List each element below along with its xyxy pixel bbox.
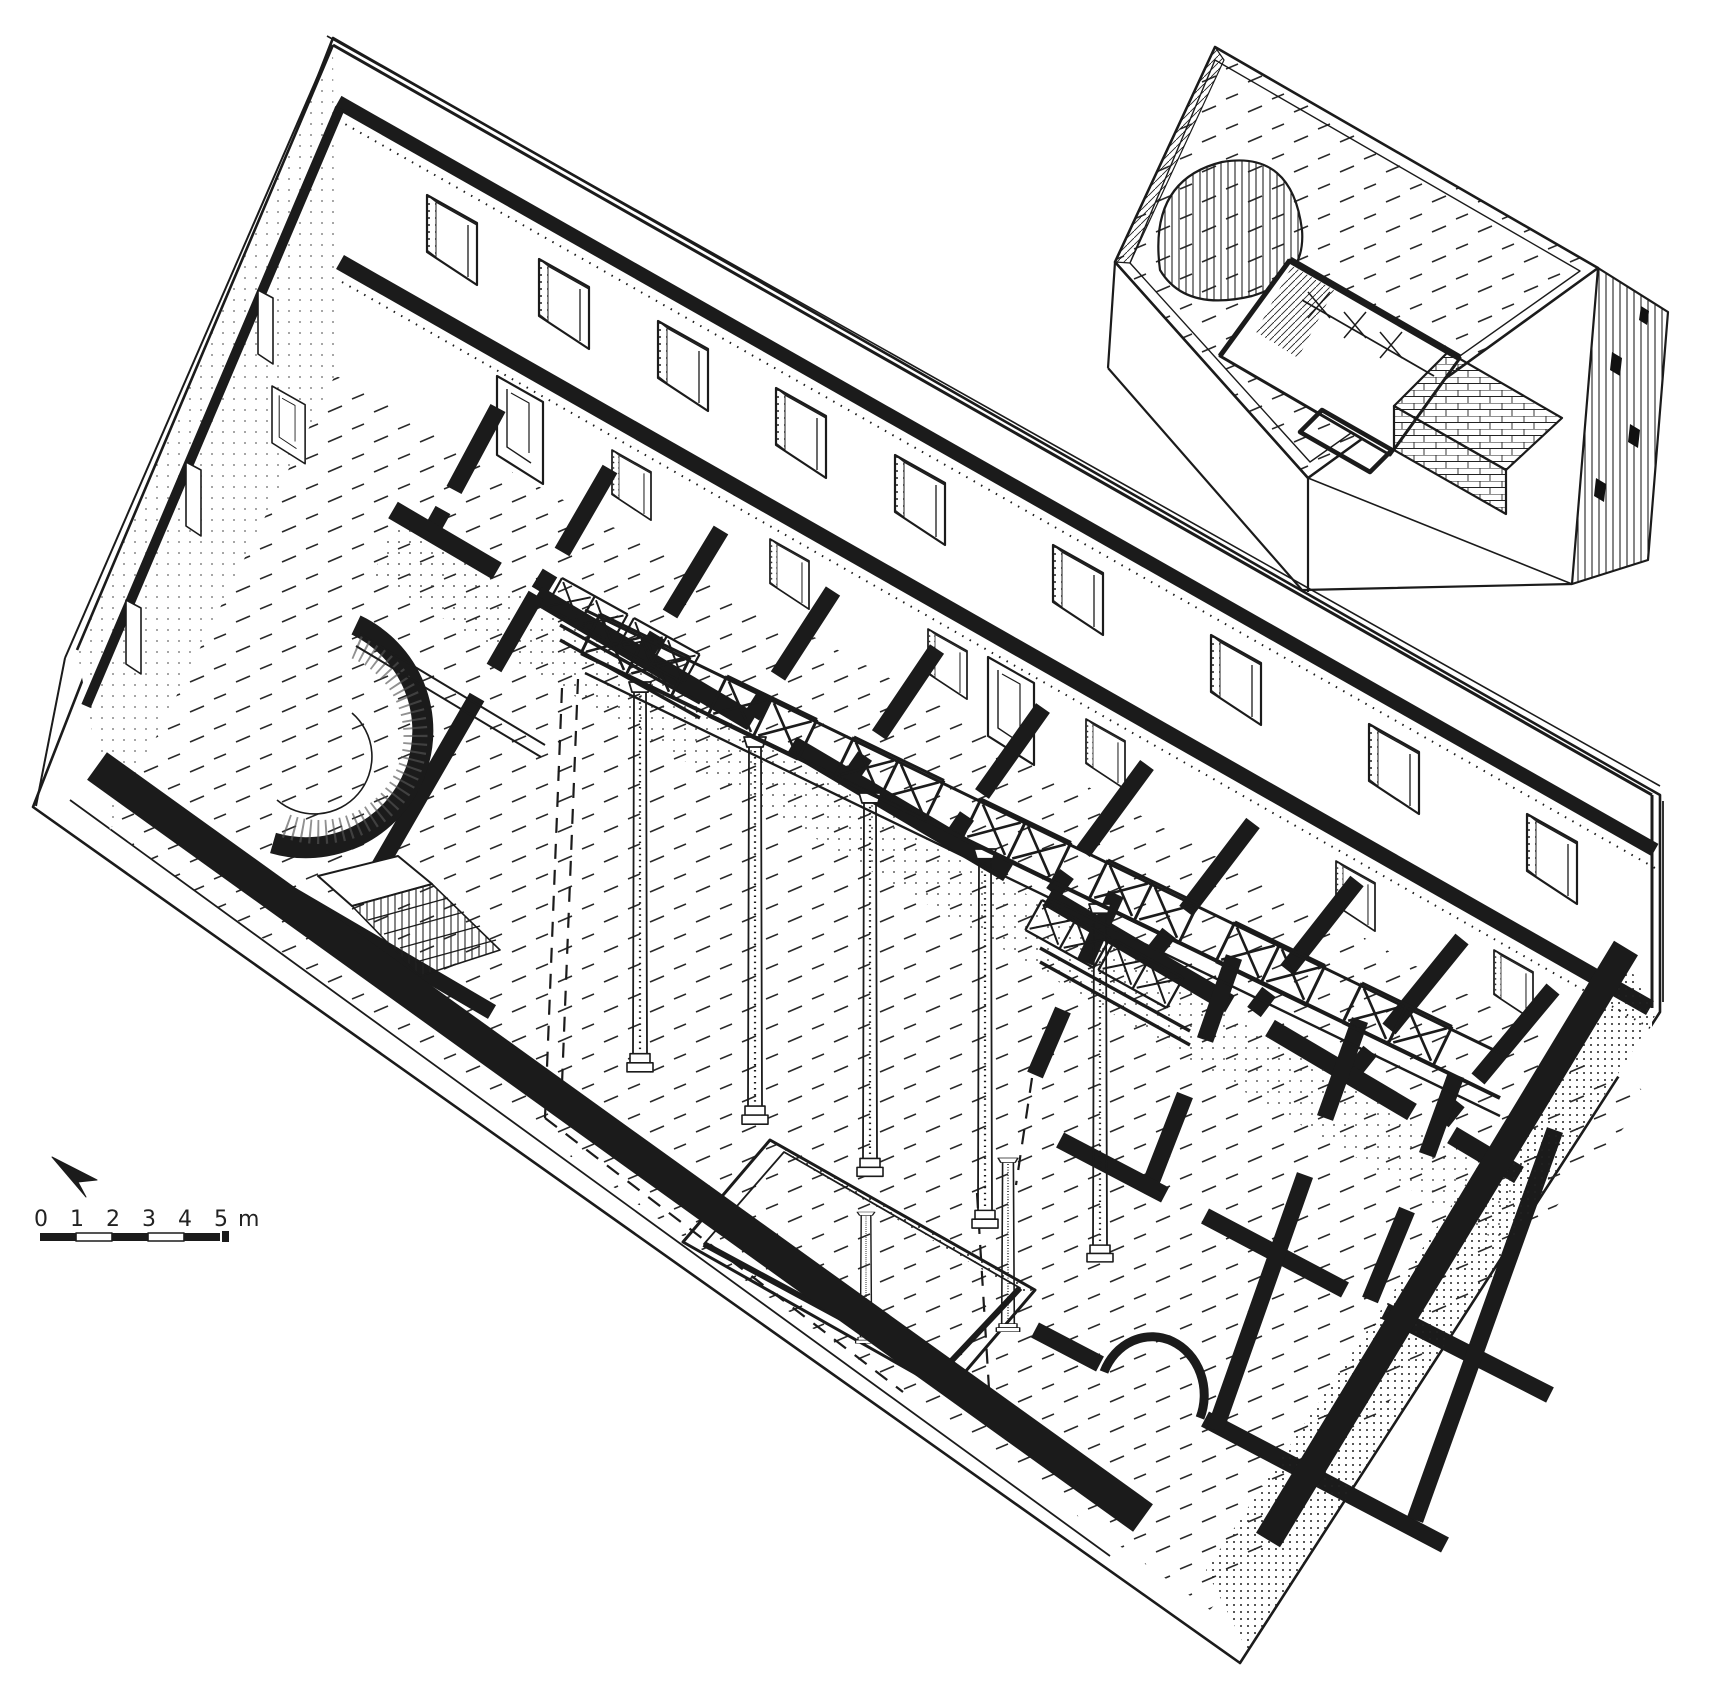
figure-canvas: 0 1 2 3 4 5 m <box>0 0 1710 1700</box>
scale-tick-4: 4 <box>178 1207 192 1232</box>
scale-bar-end-tick <box>222 1231 229 1242</box>
scale-tick-2: 2 <box>106 1207 120 1232</box>
scale-tick-3: 3 <box>142 1207 156 1232</box>
figure-page: 0 1 2 3 4 5 m <box>0 0 1710 1700</box>
scale-tick-0: 0 <box>34 1207 48 1232</box>
scale-tick-1: 1 <box>70 1207 84 1232</box>
scale-unit: m <box>238 1207 259 1232</box>
scale-tick-5: 5 <box>214 1207 228 1232</box>
